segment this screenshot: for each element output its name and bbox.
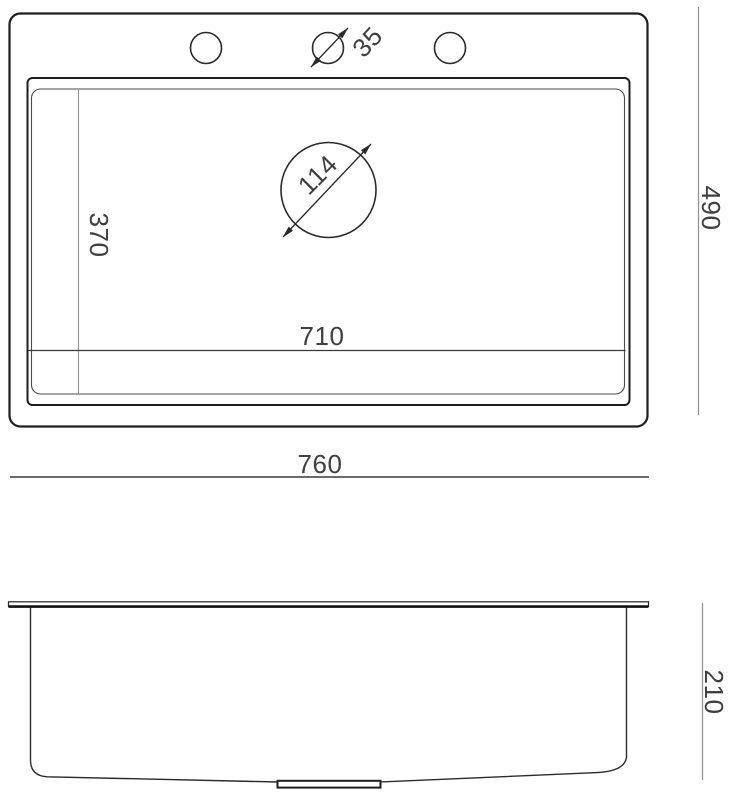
dim-line-faucet-diameter (311, 28, 348, 67)
side-view: 210 (9, 602, 730, 788)
drawing-svg: 35 114 370 710 490 760 (0, 0, 734, 800)
side-drain-fitting (278, 781, 381, 788)
dim-label-overall-depth: 490 (696, 186, 726, 231)
faucet-hole-right (435, 33, 466, 64)
dim-label-drain-diameter: 114 (292, 149, 344, 201)
sink-technical-drawing: 35 114 370 710 490 760 (0, 0, 734, 800)
dim-label-bowl-width: 710 (300, 321, 345, 351)
top-view: 35 114 370 710 490 760 (10, 7, 727, 479)
side-body-right (381, 608, 627, 783)
faucet-hole-left (191, 33, 222, 64)
dim-label-overall-height: 210 (699, 670, 729, 715)
bowl-outer-edge (28, 78, 630, 405)
side-body-left (31, 608, 278, 783)
dim-label-faucet-diameter: 35 (346, 21, 388, 63)
dim-label-bowl-depth: 370 (84, 213, 114, 258)
dim-label-overall-width: 760 (298, 449, 343, 479)
